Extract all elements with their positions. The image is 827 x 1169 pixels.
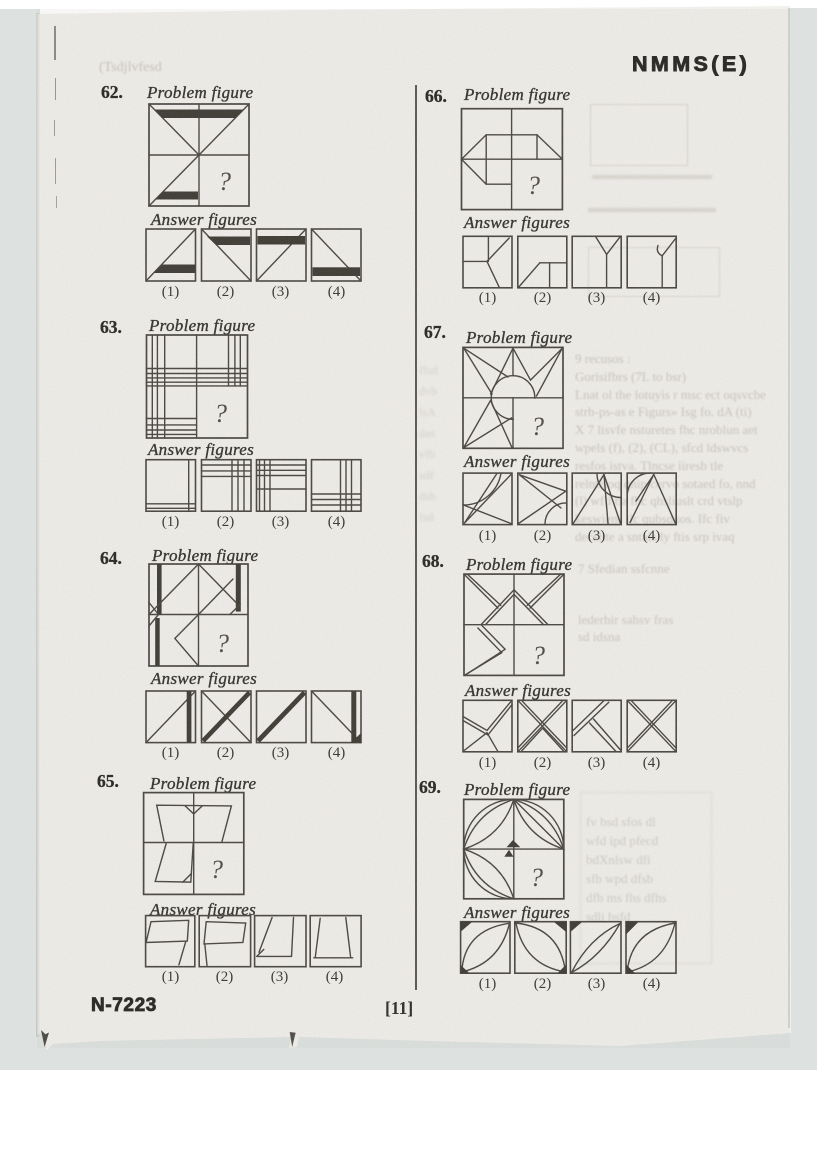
svg-text:?: ? xyxy=(218,167,231,196)
svg-text:?: ? xyxy=(214,399,227,428)
svg-text:?: ? xyxy=(210,855,223,884)
svg-text:?: ? xyxy=(527,171,540,200)
svg-text:?: ? xyxy=(216,629,229,658)
svg-text:?: ? xyxy=(530,863,543,892)
svg-text:?: ? xyxy=(532,641,545,670)
svg-text:?: ? xyxy=(531,412,544,441)
